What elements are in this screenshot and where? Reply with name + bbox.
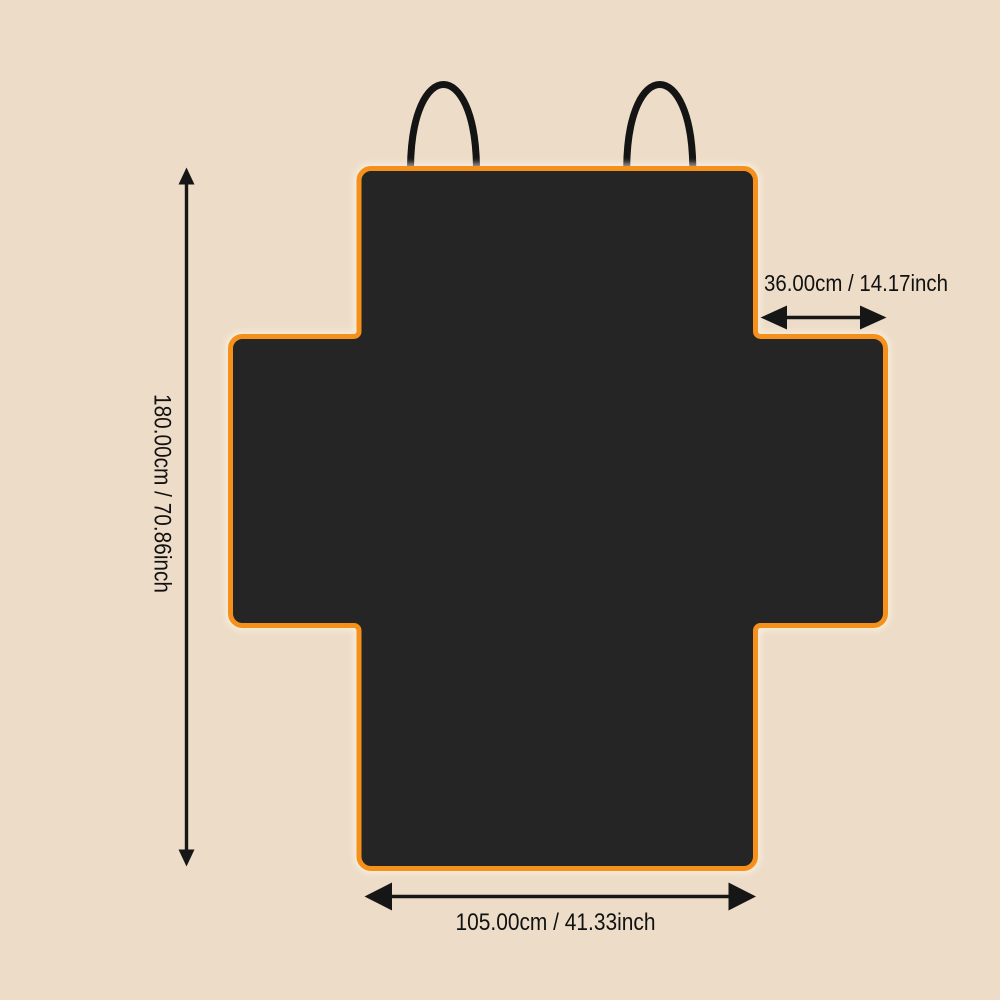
svg-text:180.00cm / 70.86inch: 180.00cm / 70.86inch [149,394,176,593]
svg-text:36.00cm / 14.17inch: 36.00cm / 14.17inch [764,270,948,296]
svg-text:105.00cm / 41.33inch: 105.00cm / 41.33inch [456,909,656,936]
